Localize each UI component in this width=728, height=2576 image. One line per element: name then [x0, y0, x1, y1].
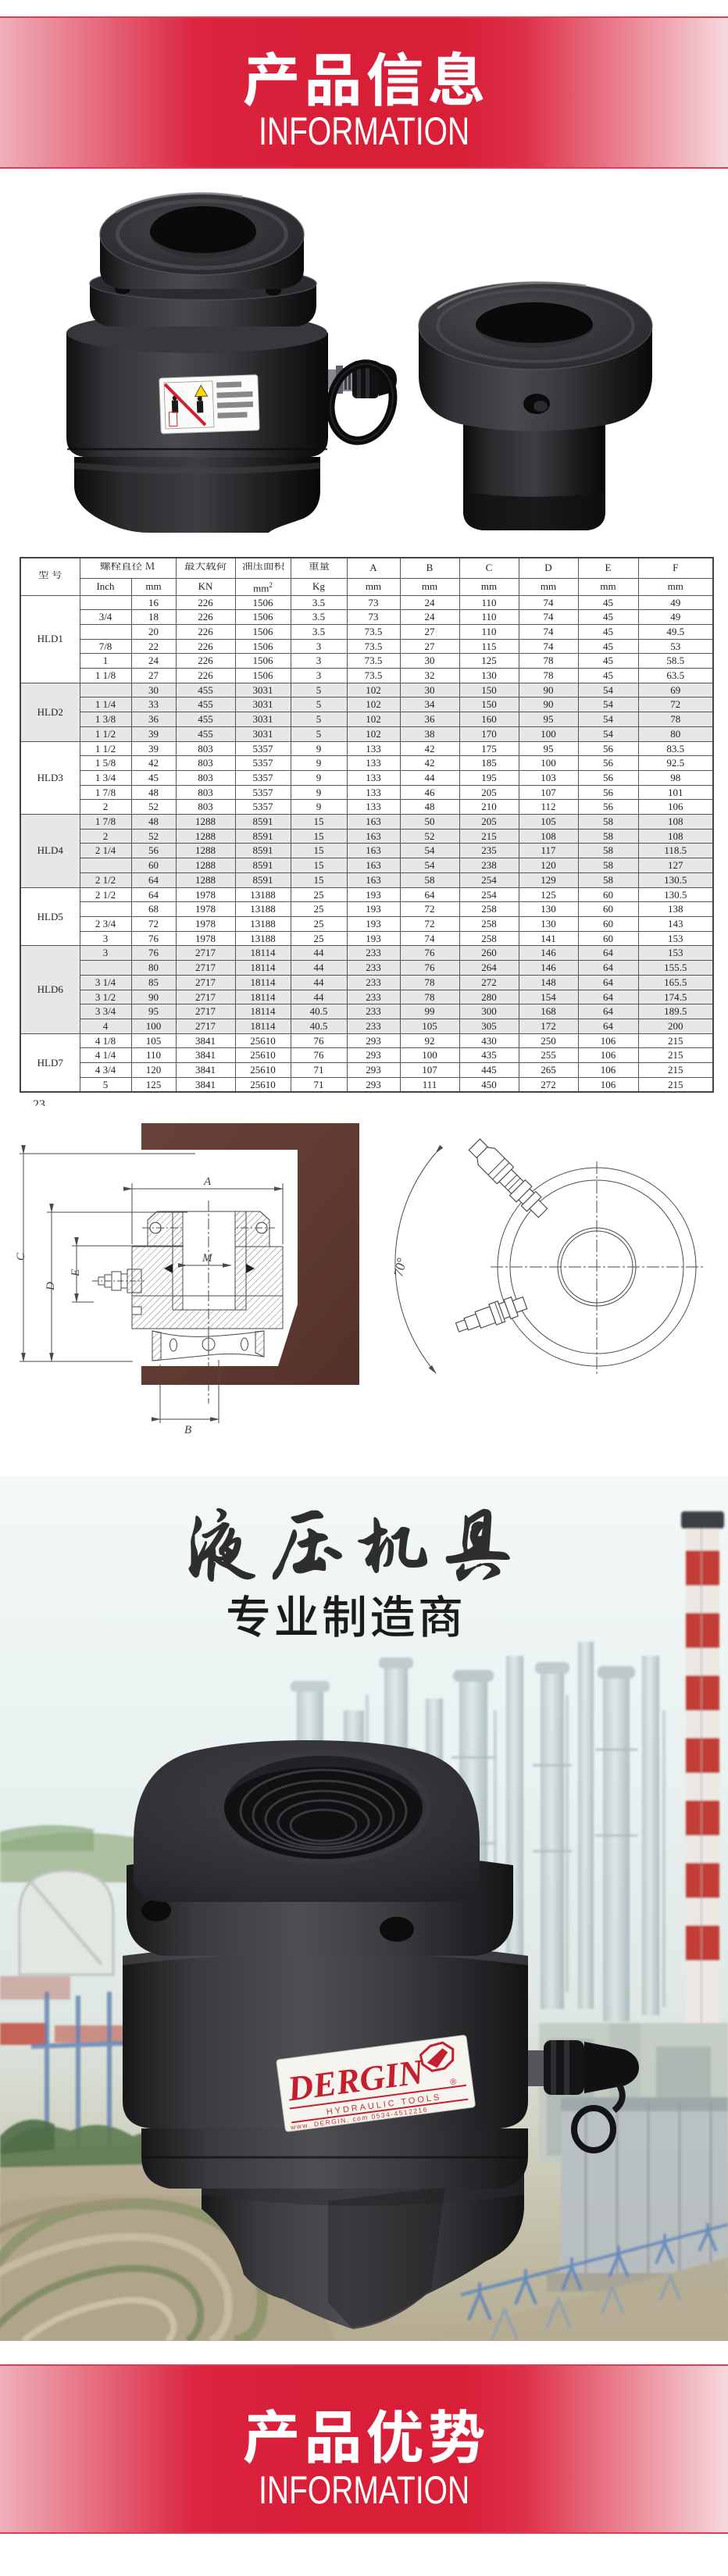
svg-text:M: M	[202, 1252, 213, 1265]
svg-text:B: B	[184, 1424, 191, 1436]
svg-text:D: D	[45, 1282, 57, 1291]
svg-text:C: C	[15, 1252, 27, 1261]
svg-text:A: A	[203, 1176, 212, 1188]
svg-text:70°: 70°	[391, 1257, 409, 1278]
svg-text:®: ®	[450, 2077, 458, 2087]
svg-text:E: E	[70, 1269, 82, 1277]
